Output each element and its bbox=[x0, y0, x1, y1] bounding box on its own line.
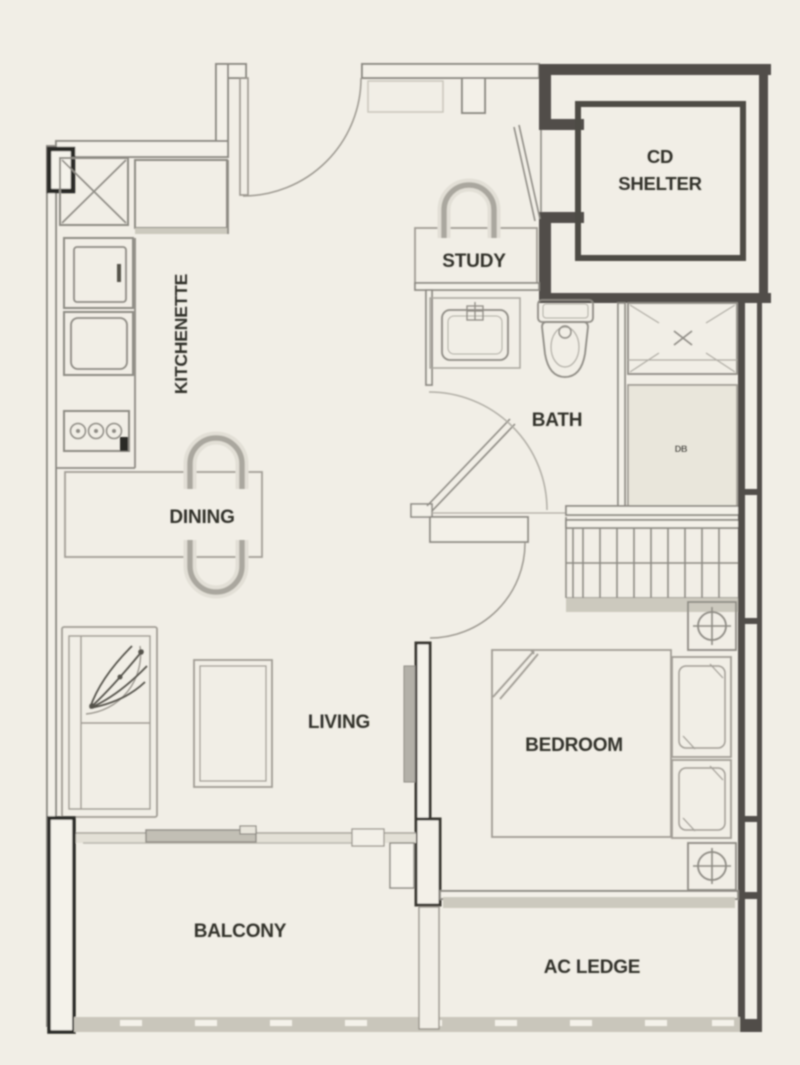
svg-text:DINING: DINING bbox=[169, 507, 234, 528]
svg-text:AC LEDGE: AC LEDGE bbox=[544, 957, 641, 978]
svg-text:SHELTER: SHELTER bbox=[618, 173, 702, 194]
svg-text:STUDY: STUDY bbox=[442, 251, 506, 272]
svg-text:BALCONY: BALCONY bbox=[194, 921, 287, 942]
svg-text:DB: DB bbox=[675, 444, 688, 454]
svg-text:BATH: BATH bbox=[532, 410, 583, 431]
svg-text:KITCHENETTE: KITCHENETTE bbox=[171, 274, 191, 394]
svg-text:LIVING: LIVING bbox=[308, 712, 370, 733]
svg-text:CD: CD bbox=[647, 146, 673, 167]
svg-text:BEDROOM: BEDROOM bbox=[525, 735, 623, 756]
